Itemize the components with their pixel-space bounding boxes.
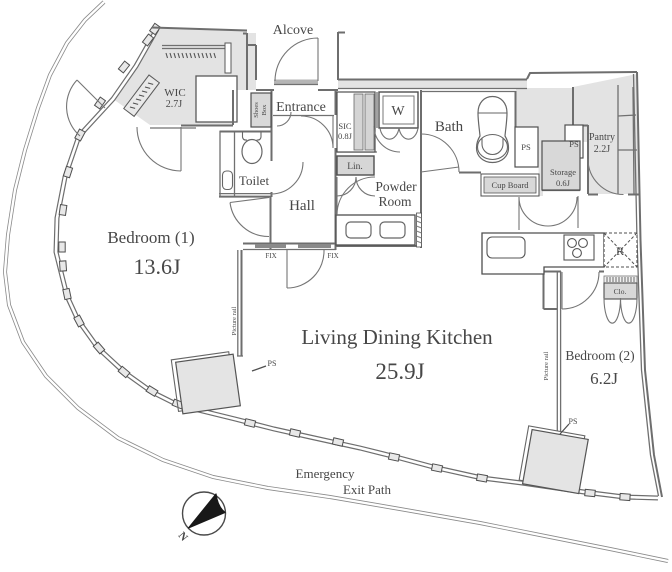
svg-text:Toilet: Toilet [239, 173, 270, 188]
svg-text:6.2J: 6.2J [590, 369, 618, 388]
svg-text:Emergency: Emergency [296, 466, 355, 481]
svg-text:Cup Board: Cup Board [491, 180, 529, 190]
svg-text:Entrance: Entrance [276, 100, 326, 115]
svg-text:Alcove: Alcove [273, 23, 313, 38]
svg-text:FIX: FIX [265, 252, 276, 260]
svg-text:FIX: FIX [327, 252, 338, 260]
svg-text:W: W [391, 104, 405, 119]
svg-text:0.6J: 0.6J [556, 178, 571, 188]
svg-text:R: R [616, 244, 624, 258]
svg-text:Bedroom (1): Bedroom (1) [107, 228, 194, 247]
svg-text:Hall: Hall [289, 198, 315, 214]
svg-text:2.7J: 2.7J [166, 99, 183, 110]
svg-text:Clo.: Clo. [614, 287, 627, 296]
svg-text:Picture rail: Picture rail [231, 306, 238, 335]
svg-text:PS: PS [268, 359, 277, 368]
svg-text:Box: Box [261, 104, 268, 116]
svg-text:Pantry: Pantry [589, 132, 615, 143]
svg-text:Picture rail: Picture rail [543, 351, 550, 380]
svg-text:Powder: Powder [375, 179, 417, 194]
svg-text:Exit Path: Exit Path [343, 482, 392, 497]
svg-text:13.6J: 13.6J [133, 254, 181, 279]
svg-text:PS: PS [569, 139, 579, 149]
svg-text:0.8J: 0.8J [338, 131, 353, 141]
svg-text:SIC: SIC [338, 121, 352, 131]
svg-text:Room: Room [378, 194, 412, 209]
svg-text:Bath: Bath [435, 119, 464, 135]
svg-text:PS: PS [521, 142, 531, 152]
svg-text:Living Dining Kitchen: Living Dining Kitchen [301, 325, 493, 349]
svg-text:Storage: Storage [550, 167, 576, 177]
svg-text:Shoes: Shoes [253, 102, 260, 118]
svg-text:PS: PS [569, 417, 578, 426]
svg-text:WIC: WIC [164, 87, 185, 99]
svg-text:Bedroom (2): Bedroom (2) [565, 348, 634, 363]
svg-text:2.2J: 2.2J [594, 144, 611, 155]
svg-text:Lin.: Lin. [347, 162, 363, 172]
svg-text:25.9J: 25.9J [375, 359, 424, 384]
